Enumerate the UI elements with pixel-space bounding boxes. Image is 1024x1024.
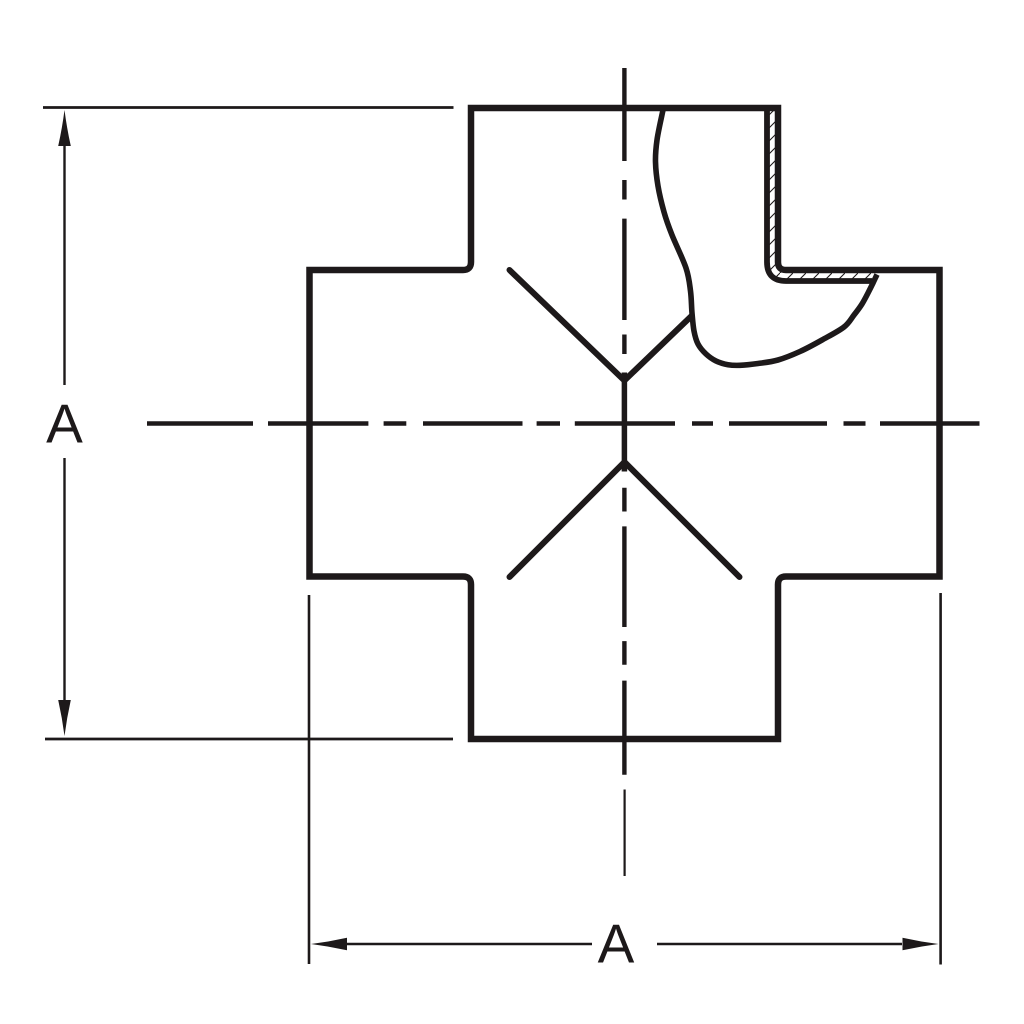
svg-text:A: A [46,393,83,455]
svg-text:A: A [598,913,635,975]
